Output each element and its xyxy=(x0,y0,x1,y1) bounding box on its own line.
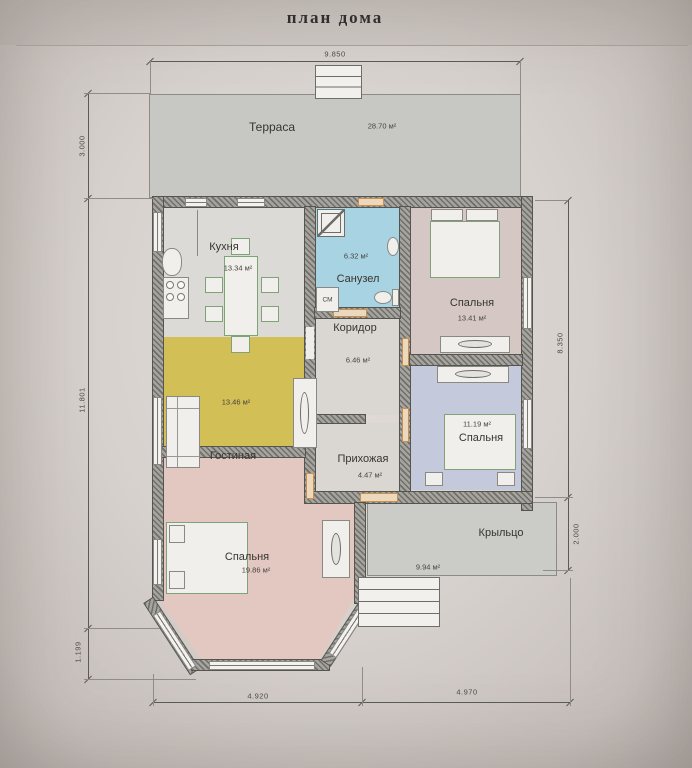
washing-machine-label: СМ xyxy=(317,296,338,303)
wardrobe-handle xyxy=(331,533,341,565)
wall-bedrooms-divider xyxy=(410,355,522,365)
dim-label-right-depth: 8.350 xyxy=(556,332,565,353)
door-porch xyxy=(360,493,398,502)
dim-line-top xyxy=(150,61,520,62)
porch-steps xyxy=(358,577,440,627)
pillow xyxy=(169,571,185,589)
label-terrace-area: 28.70 м² xyxy=(368,122,397,131)
dim-label-porch-depth: 2.000 xyxy=(572,523,581,544)
dim-extension xyxy=(84,198,153,199)
label-living-name: Гостиная xyxy=(210,450,256,462)
dining-chair xyxy=(261,277,279,293)
kitchen-sink xyxy=(162,248,182,276)
dim-line-right xyxy=(568,200,569,570)
sofa-armrest-line xyxy=(167,456,199,457)
window-top-1 xyxy=(186,199,206,206)
stove-burner xyxy=(177,293,185,301)
dim-label-terrace-depth: 3.000 xyxy=(78,135,87,156)
label-bathroom-name: Санузел xyxy=(337,273,380,285)
door-terrace xyxy=(358,198,384,206)
label-terrace-name: Терраса xyxy=(249,120,295,134)
stove-burner xyxy=(166,293,174,301)
washing-machine: СМ xyxy=(316,287,339,312)
wall-top xyxy=(153,197,532,207)
label-kitchen-area: 13.34 м² xyxy=(224,264,253,273)
dim-label-bay-depth: 1.199 xyxy=(74,641,83,662)
dim-extension xyxy=(84,628,160,629)
label-hallway-area: 4.47 м² xyxy=(358,471,382,480)
window-bedroom-right xyxy=(524,400,531,448)
dim-extension xyxy=(520,61,521,95)
dim-extension xyxy=(84,679,196,680)
terrace-steps xyxy=(315,65,362,99)
door-bedroom-left xyxy=(306,473,314,499)
dim-extension xyxy=(362,667,363,706)
dresser-handle xyxy=(458,340,492,348)
label-porch-name: Крыльцо xyxy=(479,527,524,539)
bed-top-bedroom xyxy=(430,221,500,278)
nightstand xyxy=(425,472,443,486)
stove-burner xyxy=(177,281,185,289)
label-corridor-name: Коридор xyxy=(333,322,376,334)
window-bay-bottom xyxy=(210,662,314,669)
window-living xyxy=(154,398,161,464)
dim-extension xyxy=(570,578,571,706)
opening-living-corridor xyxy=(306,327,314,359)
door-panel-handle xyxy=(300,392,309,434)
bathroom-sink xyxy=(387,237,399,256)
dim-line-left xyxy=(88,93,89,679)
dim-extension xyxy=(535,200,568,201)
label-porch-area: 9.94 м² xyxy=(416,563,440,572)
room-terrace xyxy=(150,95,520,197)
dim-extension xyxy=(84,93,150,94)
label-bathroom-area: 6.32 м² xyxy=(344,252,368,261)
dim-label-house-depth: 11.801 xyxy=(78,387,87,412)
label-bedroom-left-area: 19.86 м² xyxy=(242,566,271,575)
dining-chair xyxy=(205,306,223,322)
page-title: план дома xyxy=(287,8,384,28)
label-living-area: 13.46 м² xyxy=(222,398,251,407)
window-bedroom-left xyxy=(154,540,161,584)
shower xyxy=(317,209,345,237)
dim-extension xyxy=(543,570,573,571)
wall-corridor-hallway xyxy=(315,415,365,423)
toilet-bowl xyxy=(374,291,392,304)
wall-bottom-mid xyxy=(305,492,532,503)
dim-extension xyxy=(153,674,154,706)
wall-right xyxy=(522,197,532,510)
nightstand xyxy=(466,209,498,221)
floor-plan-photo: план дома xyxy=(0,0,692,768)
door-bedroom-right xyxy=(402,408,409,442)
dresser-handle xyxy=(455,370,491,378)
dim-label-bottom-left-width: 4.920 xyxy=(247,692,268,701)
label-bedroom-top-name: Спальня xyxy=(450,297,494,309)
dim-extension xyxy=(535,497,573,498)
label-corridor-area: 6.46 м² xyxy=(346,356,370,365)
sofa xyxy=(166,396,200,468)
kitchen-counter-line xyxy=(197,210,198,256)
nightstand xyxy=(431,209,463,221)
label-bedroom-left-name: Спальня xyxy=(225,551,269,563)
room-porch xyxy=(368,503,556,575)
label-hallway-name: Прихожая xyxy=(338,453,389,465)
label-bedroom-right-area: 11.19 м² xyxy=(463,420,491,429)
label-kitchen-name: Кухня xyxy=(209,241,238,253)
dining-chair xyxy=(261,306,279,322)
window-kitchen xyxy=(154,213,161,251)
label-bedroom-right-name: Спальня xyxy=(459,432,503,444)
door-bedroom-top xyxy=(402,338,409,366)
dining-chair xyxy=(231,336,250,353)
stove-burner xyxy=(166,281,174,289)
label-bedroom-top-area: 13.41 м² xyxy=(458,314,487,323)
nightstand xyxy=(497,472,515,486)
window-bedroom-top xyxy=(524,278,531,328)
dim-label-bottom-right-width: 4.970 xyxy=(456,688,477,697)
toilet-tank xyxy=(392,289,399,306)
window-top-2 xyxy=(238,199,264,206)
dim-extension xyxy=(150,61,151,95)
dining-chair xyxy=(205,277,223,293)
paper-edge-line xyxy=(16,45,688,46)
sofa-armrest-line xyxy=(167,408,199,409)
dim-label-top-width: 9.850 xyxy=(324,50,345,59)
pillow xyxy=(169,525,185,543)
